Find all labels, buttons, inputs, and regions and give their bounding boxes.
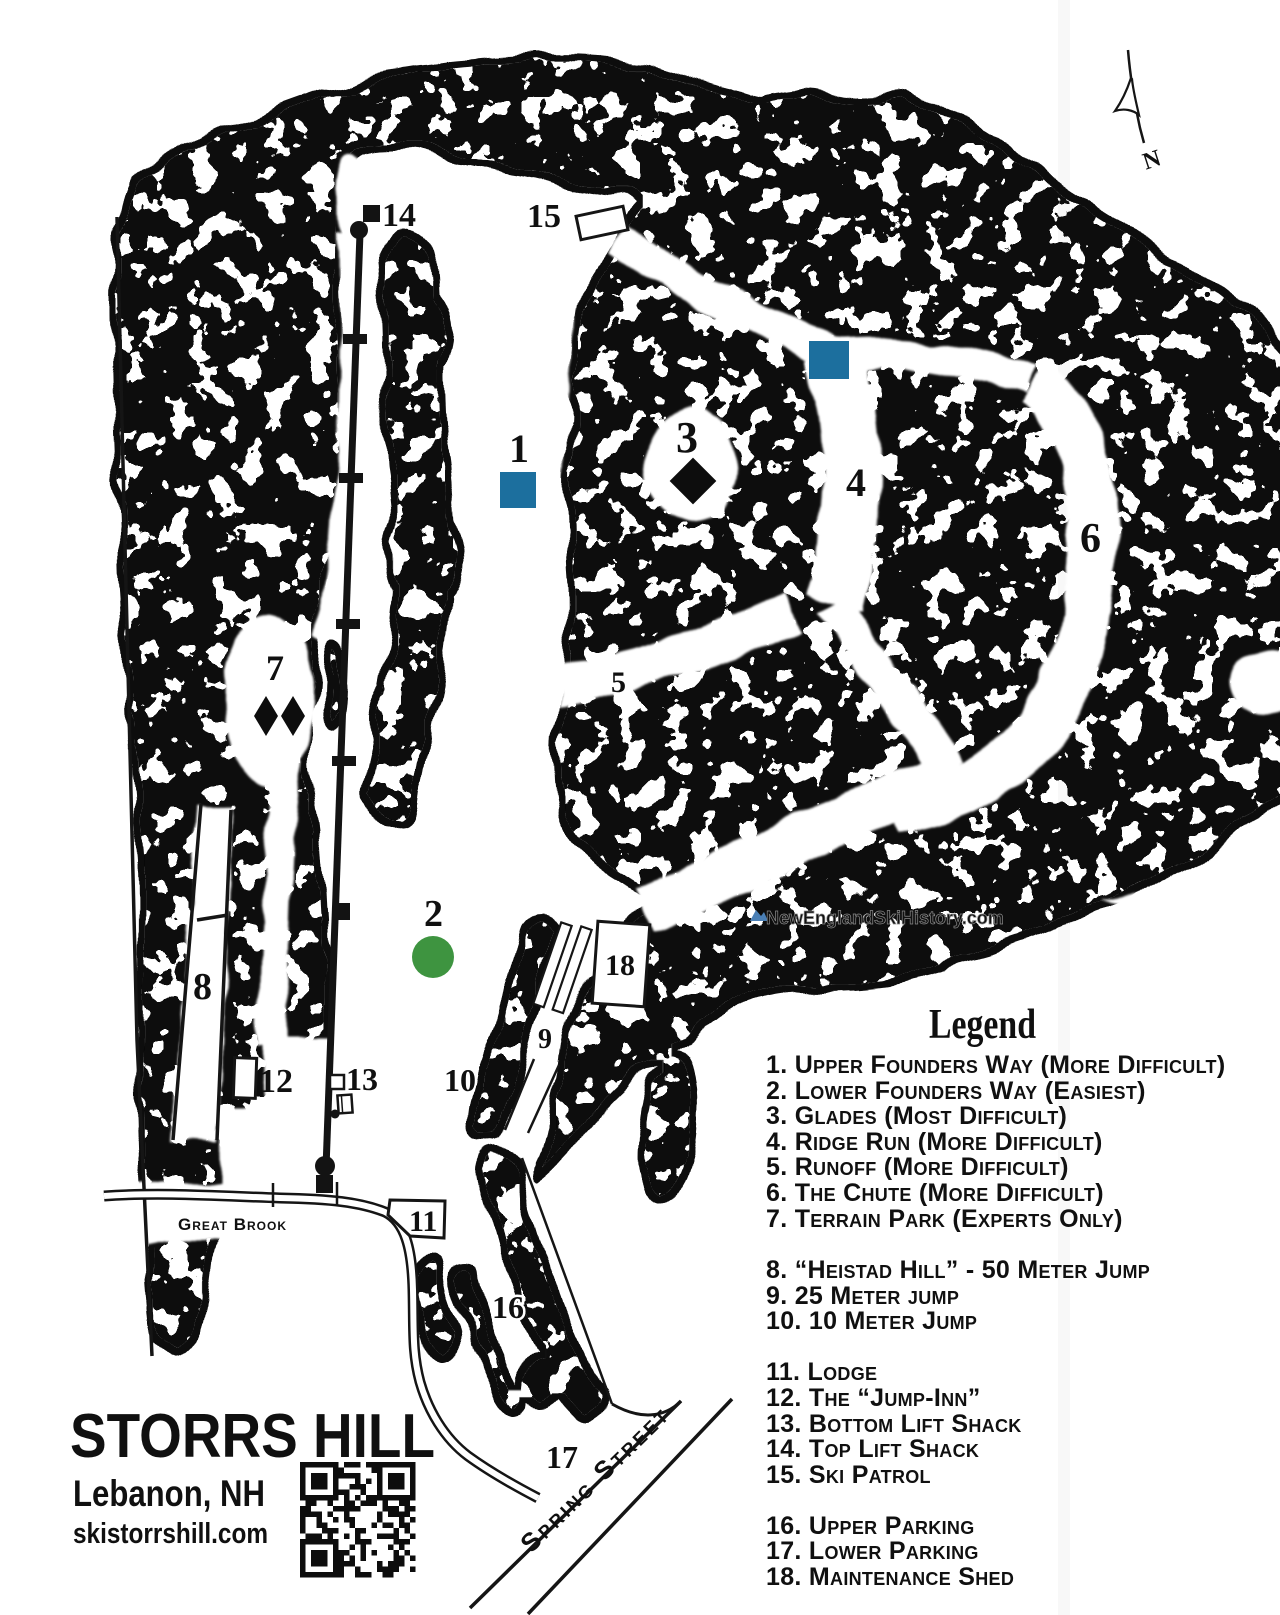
svg-text:5. Runoff (More Difficult): 5. Runoff (More Difficult) [766,1153,1069,1181]
svg-text:4: 4 [846,460,866,505]
svg-text:2: 2 [424,893,443,935]
svg-text:skistorrshill.com: skistorrshill.com [73,1518,268,1550]
svg-text:1: 1 [509,426,529,471]
svg-text:15. Ski Patrol: 15. Ski Patrol [766,1461,931,1489]
svg-text:15: 15 [527,198,561,235]
svg-text:14. Top Lift Shack: 14. Top Lift Shack [766,1435,979,1463]
svg-text:12. The “Jump-Inn”: 12. The “Jump-Inn” [766,1384,981,1412]
svg-text:6. The Chute (More Difficult): 6. The Chute (More Difficult) [766,1179,1104,1207]
svg-text:Great Brook: Great Brook [178,1215,287,1234]
svg-text:17: 17 [546,1439,578,1475]
svg-text:7. Terrain Park (Experts Only): 7. Terrain Park (Experts Only) [766,1205,1123,1233]
svg-text:Lebanon, NH: Lebanon, NH [73,1473,265,1514]
svg-text:10: 10 [444,1062,476,1098]
svg-text:STORRS HILL: STORRS HILL [70,1402,435,1471]
svg-text:8. “Heistad Hill” - 50 Meter J: 8. “Heistad Hill” - 50 Meter Jump [766,1256,1150,1284]
svg-text:11: 11 [409,1205,437,1238]
svg-text:11. Lodge: 11. Lodge [766,1358,877,1386]
svg-text:13: 13 [346,1061,378,1097]
svg-text:4. Ridge Run (More Difficult): 4. Ridge Run (More Difficult) [766,1128,1103,1156]
svg-text:Legend: Legend [929,1002,1036,1048]
svg-text:18: 18 [605,949,635,982]
svg-text:14: 14 [382,197,416,234]
svg-text:8: 8 [193,966,212,1008]
svg-text:6: 6 [1080,516,1101,562]
svg-text:16: 16 [492,1289,524,1325]
svg-text:7: 7 [266,648,284,688]
svg-text:NewEnglandSkiHistory.com: NewEnglandSkiHistory.com [766,908,1004,928]
svg-text:13. Bottom Lift Shack: 13. Bottom Lift Shack [766,1410,1022,1438]
svg-text:16. Upper Parking: 16. Upper Parking [766,1512,975,1540]
svg-text:12: 12 [259,1063,293,1100]
svg-text:3. Glades (Most Difficult): 3. Glades (Most Difficult) [766,1102,1067,1130]
svg-text:2. Lower Founders Way (Easiest: 2. Lower Founders Way (Easiest) [766,1077,1146,1105]
svg-text:17. Lower Parking: 17. Lower Parking [766,1537,979,1565]
svg-text:3: 3 [676,413,698,462]
svg-text:18. Maintenance Shed: 18. Maintenance Shed [766,1563,1014,1591]
svg-text:10. 10 Meter Jump: 10. 10 Meter Jump [766,1307,977,1335]
svg-text:1. Upper Founders Way (More Di: 1. Upper Founders Way (More Difficult) [766,1051,1225,1079]
svg-text:9. 25 Meter jump: 9. 25 Meter jump [766,1282,959,1310]
svg-text:5: 5 [611,666,626,699]
svg-text:9: 9 [538,1024,552,1055]
